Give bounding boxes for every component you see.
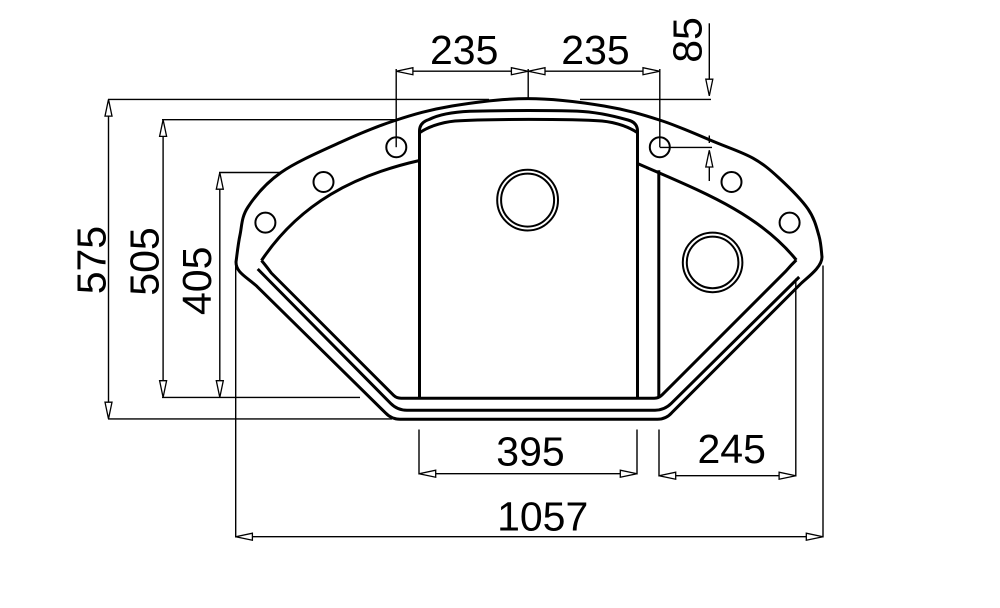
svg-text:505: 505 xyxy=(122,227,168,295)
svg-text:235: 235 xyxy=(430,27,498,73)
svg-text:1057: 1057 xyxy=(497,494,588,540)
svg-text:245: 245 xyxy=(697,426,765,472)
svg-text:575: 575 xyxy=(68,226,114,294)
svg-text:395: 395 xyxy=(496,428,564,474)
svg-text:235: 235 xyxy=(561,27,629,73)
svg-text:85: 85 xyxy=(665,17,711,63)
svg-text:405: 405 xyxy=(174,247,220,315)
